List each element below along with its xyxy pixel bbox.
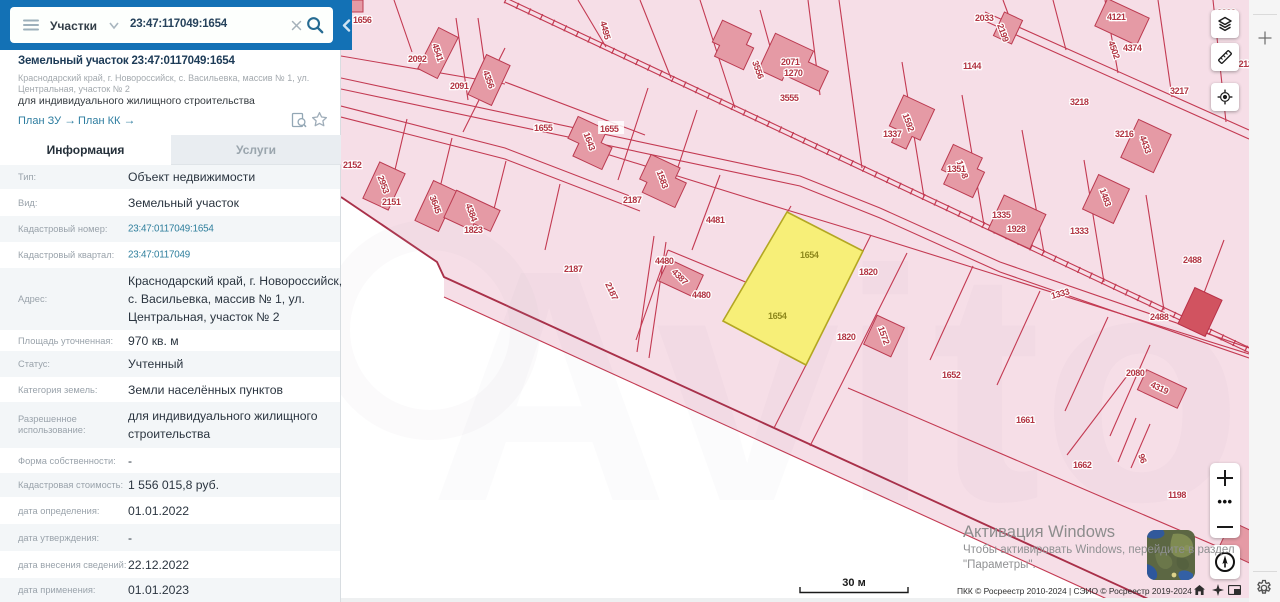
svg-text:1656: 1656 — [353, 15, 372, 25]
svg-text:3218: 3218 — [1070, 97, 1089, 107]
svg-text:1333: 1333 — [1070, 226, 1089, 236]
svg-text:1144: 1144 — [963, 61, 981, 71]
svg-text:1655: 1655 — [534, 123, 553, 133]
svg-text:2071: 2071 — [781, 57, 800, 67]
svg-text:1652: 1652 — [942, 370, 961, 380]
svg-text:2151: 2151 — [382, 197, 401, 207]
svg-text:2152: 2152 — [343, 160, 362, 170]
svg-text:2187: 2187 — [564, 264, 583, 274]
svg-text:1654: 1654 — [800, 250, 819, 260]
svg-text:1661: 1661 — [1016, 415, 1035, 425]
svg-text:2187: 2187 — [623, 195, 642, 205]
svg-text:1823: 1823 — [464, 225, 483, 235]
svg-text:4480: 4480 — [692, 290, 711, 300]
svg-text:2091: 2091 — [450, 81, 469, 91]
svg-text:1335: 1335 — [992, 210, 1011, 220]
svg-text:2080: 2080 — [1126, 368, 1145, 378]
svg-text:1337: 1337 — [883, 129, 902, 139]
svg-text:2092: 2092 — [408, 54, 427, 64]
svg-text:1198: 1198 — [1168, 490, 1186, 500]
svg-text:3555: 3555 — [780, 93, 799, 103]
svg-text:4480: 4480 — [655, 256, 674, 266]
svg-text:1662: 1662 — [1073, 460, 1092, 470]
svg-text:1654: 1654 — [768, 311, 787, 321]
svg-text:1820: 1820 — [859, 267, 878, 277]
svg-text:4374: 4374 — [1123, 43, 1142, 53]
svg-text:1820: 1820 — [837, 332, 856, 342]
svg-text:1270: 1270 — [784, 68, 803, 78]
svg-text:4481: 4481 — [706, 215, 725, 225]
svg-text:2033: 2033 — [975, 13, 994, 23]
svg-text:1655: 1655 — [600, 124, 619, 134]
svg-text:3217: 3217 — [1170, 86, 1189, 96]
svg-text:1351: 1351 — [947, 164, 966, 174]
svg-text:2488: 2488 — [1183, 255, 1202, 265]
svg-text:1928: 1928 — [1007, 224, 1026, 234]
svg-text:3216: 3216 — [1115, 129, 1134, 139]
svg-text:2488: 2488 — [1150, 312, 1169, 322]
svg-text:4121: 4121 — [1107, 12, 1126, 22]
